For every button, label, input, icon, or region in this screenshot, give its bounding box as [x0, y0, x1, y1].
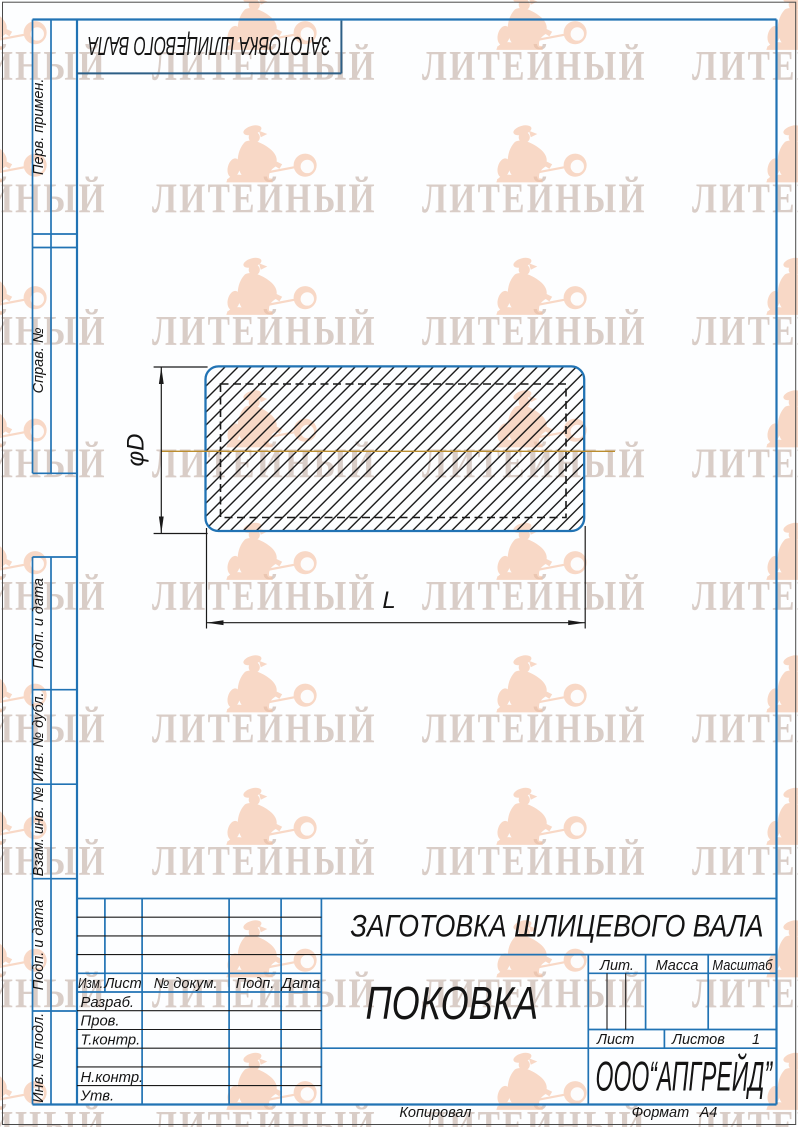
svg-text:Т.контр.: Т.контр. [81, 1032, 141, 1048]
svg-text:1: 1 [752, 1032, 760, 1048]
svg-text:Инв. № подл.: Инв. № подл. [31, 1013, 47, 1103]
svg-text:Копировал: Копировал [399, 1105, 471, 1121]
svg-text:Перв. примен.: Перв. примен. [31, 79, 47, 175]
svg-text:ООО“АПГРЕЙД”: ООО“АПГРЕЙД” [596, 1052, 774, 1099]
svg-text:Взам. инв. №: Взам. инв. № [31, 786, 47, 876]
svg-text:φD: φD [123, 434, 150, 467]
svg-text:А4: А4 [699, 1105, 718, 1121]
svg-text:Подп. и дата: Подп. и дата [31, 578, 47, 669]
svg-text:Подп. и дата: Подп. и дата [31, 900, 47, 991]
svg-text:Подп.: Подп. [236, 976, 275, 992]
svg-text:Лит.: Лит. [599, 958, 634, 974]
svg-text:L: L [382, 587, 395, 614]
svg-text:Изм.: Изм. [78, 976, 103, 992]
svg-text:Листов: Листов [671, 1032, 725, 1048]
svg-text:Лист: Лист [596, 1032, 634, 1048]
svg-text:Дата: Дата [280, 976, 320, 992]
svg-text:ЗАГОТОВКА ШЛИЦЕВОГО ВАЛА: ЗАГОТОВКА ШЛИЦЕВОГО ВАЛА [88, 31, 331, 61]
svg-text:Масса: Масса [656, 958, 699, 974]
svg-text:Лист: Лист [103, 976, 141, 992]
svg-text:ЗАГОТОВКА ШЛИЦЕВОГО ВАЛА: ЗАГОТОВКА ШЛИЦЕВОГО ВАЛА [351, 907, 764, 943]
svg-text:Разраб.: Разраб. [81, 995, 135, 1011]
svg-text:Утв.: Утв. [80, 1089, 115, 1105]
svg-text:№ докум.: № докум. [154, 976, 218, 992]
svg-text:Масштаб: Масштаб [712, 958, 773, 974]
svg-text:ПОКОВКА: ПОКОВКА [366, 977, 539, 1029]
svg-text:Справ. №: Справ. № [31, 327, 47, 393]
svg-text:Инв. № дубл.: Инв. № дубл. [31, 692, 47, 781]
svg-text:Формат: Формат [632, 1105, 690, 1121]
svg-text:Пров.: Пров. [81, 1014, 120, 1030]
svg-text:Н.контр.: Н.контр. [81, 1070, 144, 1086]
